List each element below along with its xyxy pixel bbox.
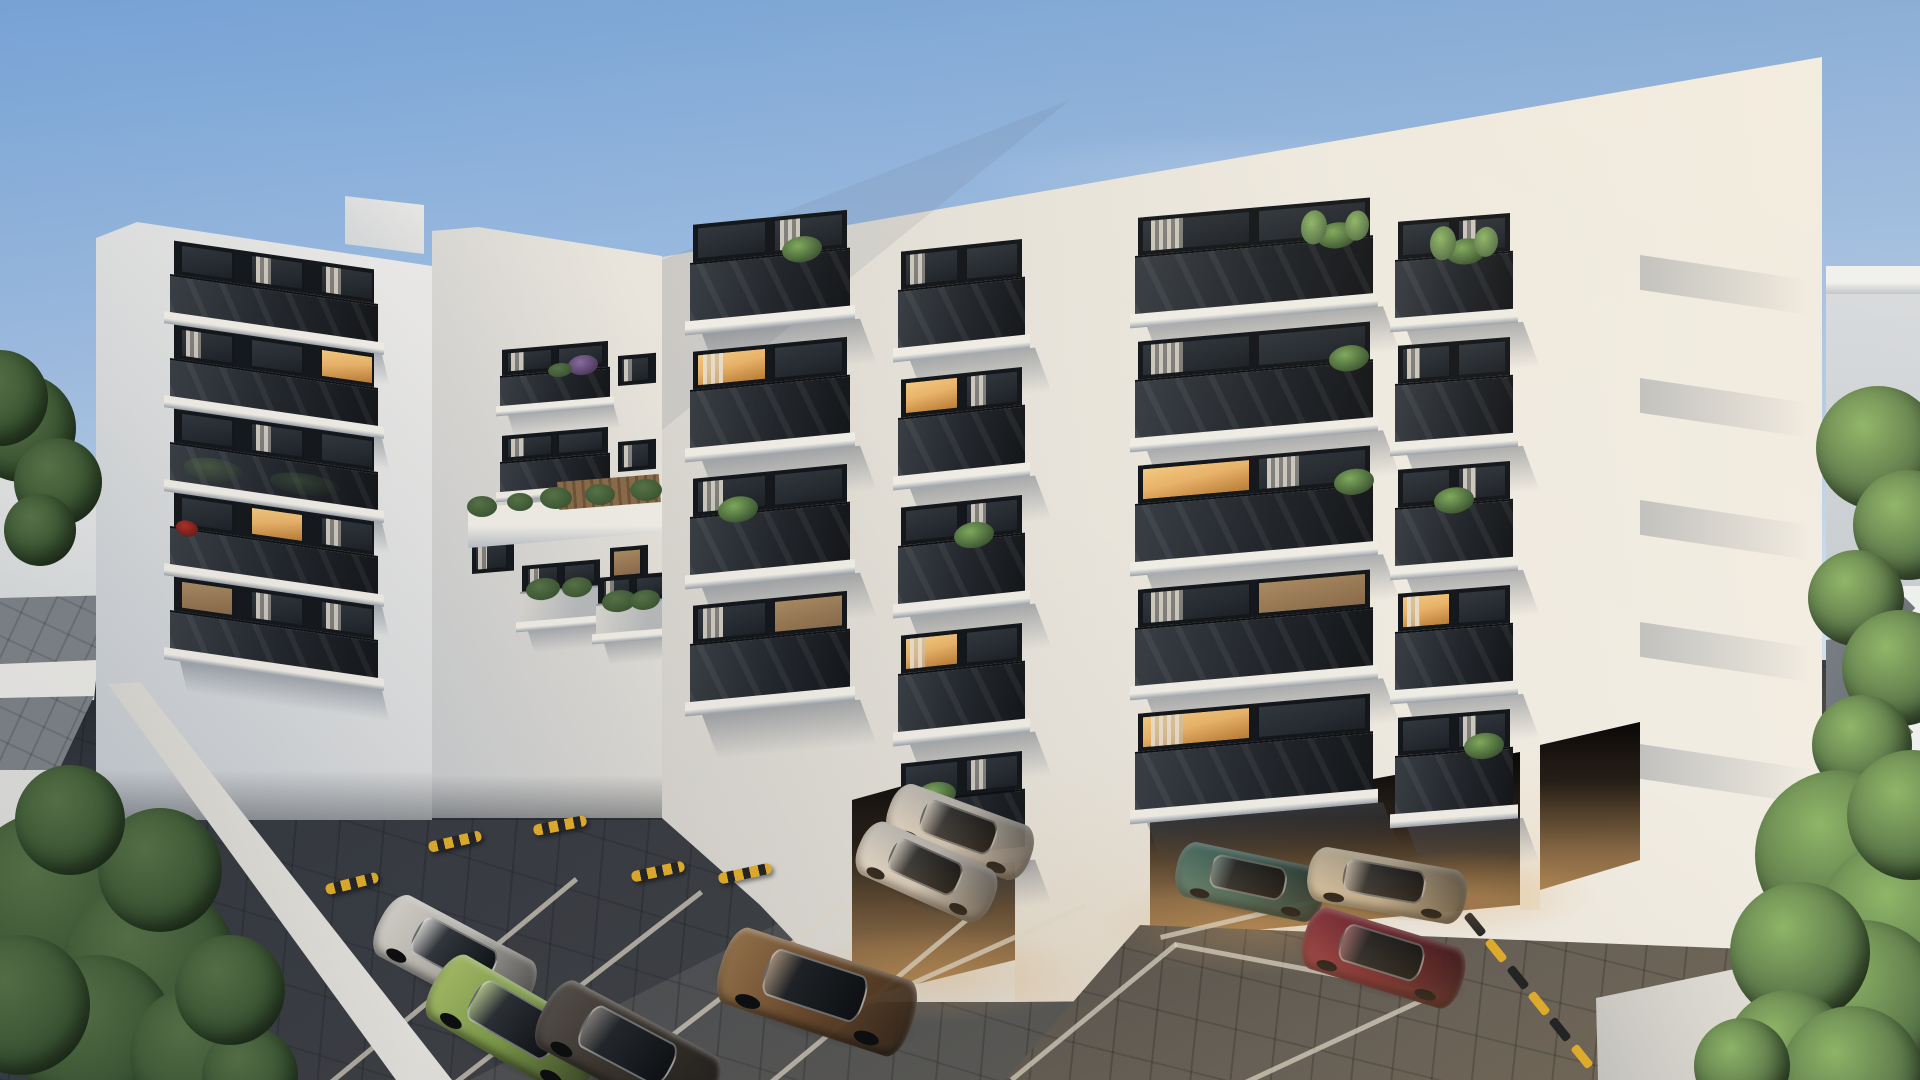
- color-grade: [0, 0, 1920, 1080]
- architectural-render-scene: [0, 0, 1920, 1080]
- warm-cool-grade: [0, 0, 1920, 1080]
